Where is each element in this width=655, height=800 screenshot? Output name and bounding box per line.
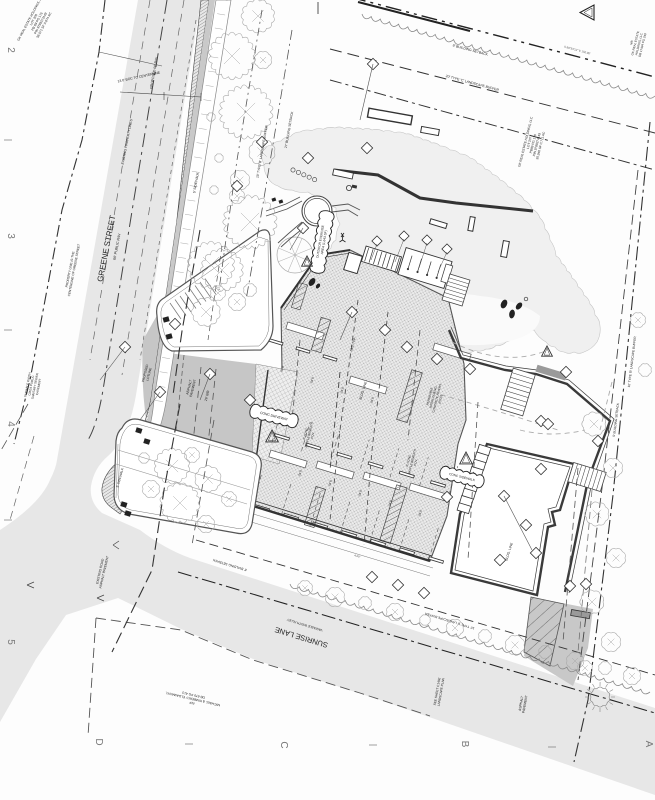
svg-text:2: 2 [5, 47, 16, 53]
svg-text:D: D [93, 738, 104, 745]
svg-text:4: 4 [5, 421, 16, 427]
svg-text:C: C [278, 741, 289, 748]
svg-text:A: A [643, 741, 654, 748]
svg-text:B: B [459, 741, 470, 748]
svg-text:3: 3 [5, 233, 16, 239]
svg-text:5: 5 [5, 639, 16, 645]
